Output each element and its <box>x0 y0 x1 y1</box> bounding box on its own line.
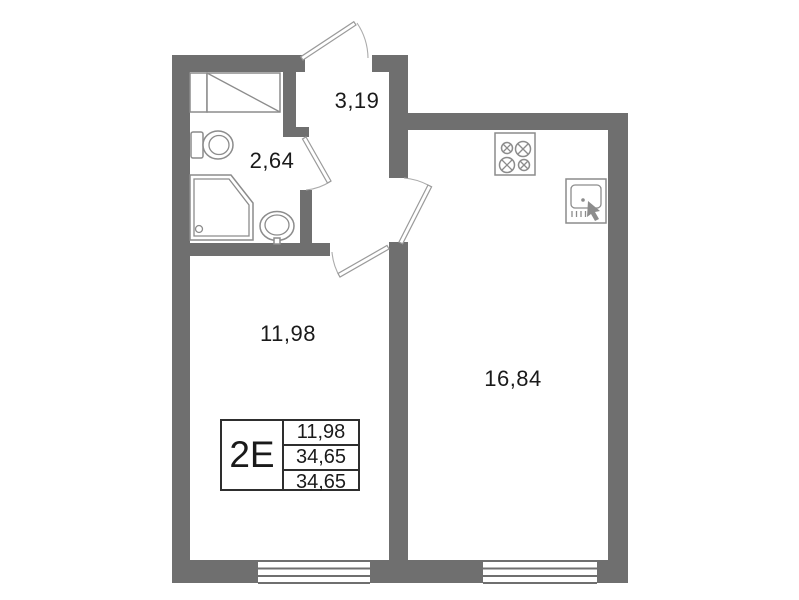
living-room-window <box>258 561 370 583</box>
shower-icon <box>190 175 253 240</box>
wall-bottom-left-pier <box>172 560 258 583</box>
wall-left <box>172 55 190 583</box>
floor-plan: 3,19 2,64 11,98 16,84 2E 11,98 34,65 34,… <box>0 0 799 600</box>
wall-top-left <box>172 55 305 72</box>
walls <box>172 55 628 583</box>
wall-middle <box>389 242 408 560</box>
wall-bathroom-door-jamb <box>283 127 309 137</box>
unit-area-row: 34,65 <box>284 444 358 469</box>
unit-areas: 11,98 34,65 34,65 <box>284 421 358 489</box>
stove-icon <box>495 133 535 175</box>
unit-type-label: 2E <box>222 421 284 489</box>
unit-area-row: 34,65 <box>284 469 358 494</box>
entrance-door <box>301 22 368 60</box>
area-label-kitchen: 16,84 <box>484 366 542 392</box>
area-label-hallway: 3,19 <box>335 88 380 114</box>
wall-bottom-center-pier <box>370 560 483 583</box>
wall-kitchen-top <box>389 113 628 130</box>
wall-right <box>608 113 628 583</box>
floor-plan-drawing <box>0 0 799 600</box>
wall-bathroom-right-lower <box>300 190 312 243</box>
area-label-living-room: 11,98 <box>260 321 316 347</box>
wall-bottom-right-pier <box>597 560 628 583</box>
unit-info-box: 2E 11,98 34,65 34,65 <box>220 419 360 491</box>
bathtub-shelf-icon <box>190 73 207 112</box>
living-room-door <box>332 246 389 278</box>
bathroom-sink-icon <box>260 212 294 245</box>
kitchen-sink-icon <box>566 179 606 223</box>
bathtub-icon <box>207 73 280 112</box>
area-label-bathroom: 2,64 <box>250 148 295 174</box>
unit-area-row: 11,98 <box>284 421 358 444</box>
kitchen-door <box>399 178 432 244</box>
wall-bathroom-bottom <box>190 243 330 256</box>
bathroom-door <box>303 137 332 190</box>
kitchen-window <box>483 561 597 583</box>
toilet-icon <box>191 131 233 159</box>
wall-bathroom-right-upper <box>283 72 296 127</box>
